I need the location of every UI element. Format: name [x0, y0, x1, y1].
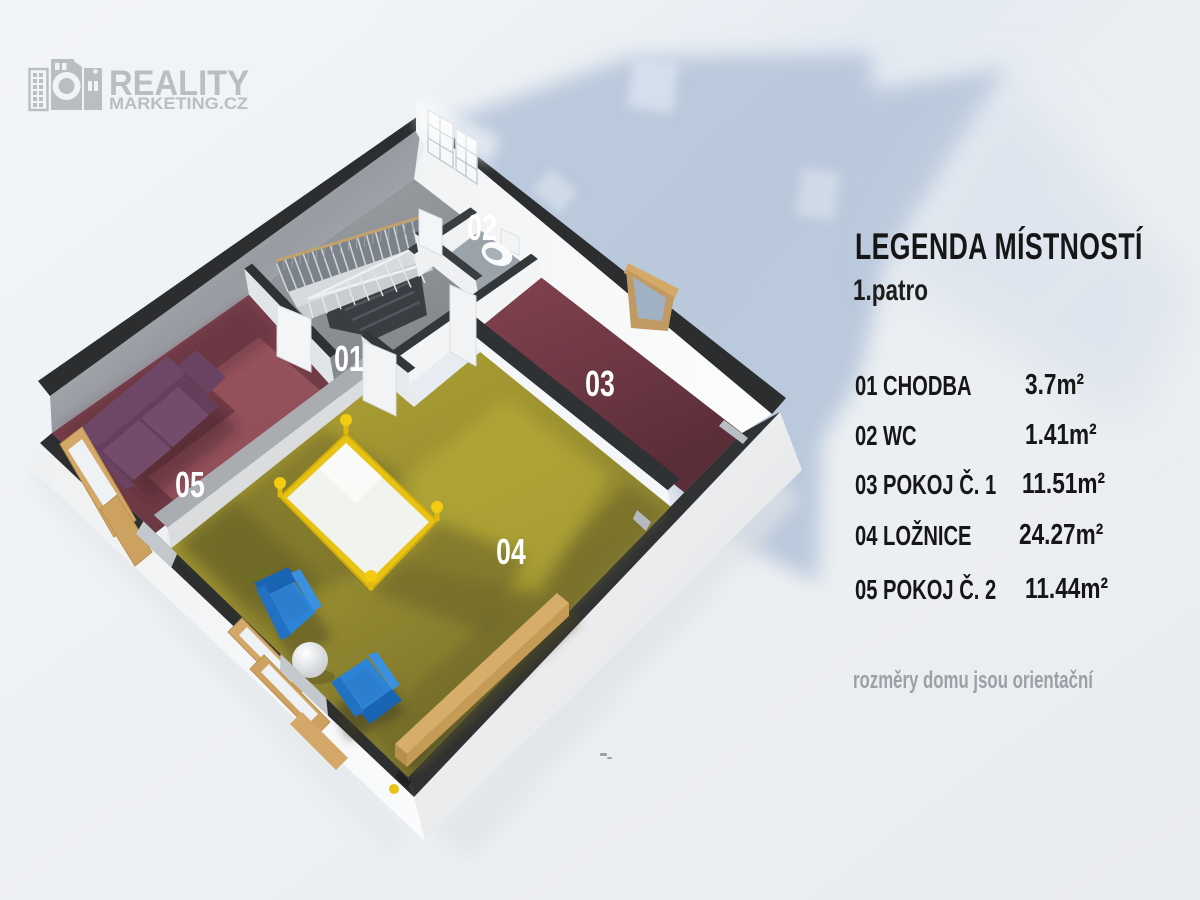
- svg-text:MARKETING.CZ: MARKETING.CZ: [109, 94, 248, 113]
- svg-text:01: 01: [334, 338, 364, 379]
- svg-text:02: 02: [467, 207, 497, 248]
- svg-text:05: 05: [175, 464, 205, 505]
- svg-text:04: 04: [496, 531, 526, 572]
- svg-text:03: 03: [585, 363, 615, 404]
